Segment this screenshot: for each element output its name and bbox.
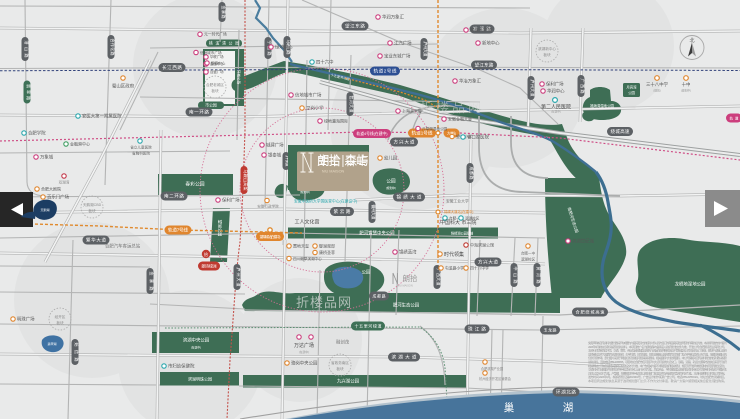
svg-text:安徽工业大学: 安徽工业大学 <box>446 198 469 203</box>
svg-text:十中: 十中 <box>682 81 691 88</box>
svg-text:安徽金融大厦: 安徽金融大厦 <box>448 115 472 121</box>
svg-text:屯溪路小学: 屯溪路小学 <box>445 265 464 270</box>
svg-text:肥河生态公园: 肥河生态公园 <box>393 302 420 309</box>
svg-text:四十六中: 四十六中 <box>316 59 334 66</box>
svg-text:银泰城: 银泰城 <box>268 152 282 159</box>
svg-text:九兴湖公园: 九兴湖公园 <box>337 378 360 385</box>
svg-text:十五里河绿道: 十五里河绿道 <box>355 322 382 328</box>
svg-text:板块: 板块 <box>211 88 219 93</box>
svg-text:滨湖新中心: 滨湖新中心 <box>538 46 556 51</box>
svg-text:包河大道: 包河大道 <box>349 96 355 113</box>
svg-text:信地城市广场: 信地城市广场 <box>200 50 222 55</box>
svg-text:合肥汽车客运总站: 合肥汽车客运总站 <box>105 243 141 250</box>
svg-text:金寨路: 金寨路 <box>149 272 155 291</box>
svg-text:杭州经济开发区管委会: 杭州经济开发区管委会 <box>479 376 512 381</box>
svg-text:绿地中心: 绿地中心 <box>275 44 293 51</box>
svg-text:紫云路: 紫云路 <box>334 208 351 215</box>
svg-text:华联广场: 华联广场 <box>210 54 224 59</box>
svg-text:万达广场: 万达广场 <box>294 342 314 349</box>
svg-text:元一时代广场: 元一时代广场 <box>204 32 227 37</box>
svg-text:融创茂: 融创茂 <box>336 339 350 346</box>
svg-text:珠江路: 珠江路 <box>468 326 486 333</box>
svg-text:龙栖地湿地公园: 龙栖地湿地公园 <box>675 281 706 288</box>
svg-text:广西路: 广西路 <box>580 79 586 94</box>
svg-text:凡草湖湿地公园: 凡草湖湿地公园 <box>422 126 448 131</box>
svg-text:金融港中心: 金融港中心 <box>70 140 90 146</box>
svg-text:锦绣大道: 锦绣大道 <box>397 194 422 201</box>
svg-text:(在建中): (在建中) <box>299 350 309 354</box>
svg-text:南一环路: 南一环路 <box>189 109 209 116</box>
svg-text:月亮湾: 月亮湾 <box>626 85 637 90</box>
svg-text:朗拾: 朗拾 <box>317 153 341 168</box>
svg-text:合肥绕城高速: 合肥绕城高速 <box>576 309 606 316</box>
svg-text:华冶万象汇: 华冶万象汇 <box>459 78 482 85</box>
svg-text:四十八中学: 四十八中学 <box>470 265 489 270</box>
svg-text:繁华大道: 繁华大道 <box>86 237 106 244</box>
svg-text:城建广场: 城建广场 <box>266 142 284 149</box>
svg-text:安徽中医药大学国医堂中心(在建设中): 安徽中医药大学国医堂中心(在建设中) <box>294 198 358 203</box>
svg-text:福海湾湿地公园: 福海湾湿地公园 <box>590 103 614 108</box>
svg-text:幼儿园: 幼儿园 <box>384 155 398 162</box>
svg-text:安医大第一附属医院: 安医大第一附属医院 <box>82 113 122 120</box>
svg-text:NIU MAISON: NIU MAISON <box>397 283 413 287</box>
svg-text:翡翠湖: 翡翠湖 <box>47 341 56 346</box>
svg-text:轨道4号线(在建中): 轨道4号线(在建中) <box>357 131 389 136</box>
svg-text:肥河智慧中央公园: 肥河智慧中央公园 <box>359 230 395 237</box>
svg-text:锦绣蓝湾: 锦绣蓝湾 <box>399 249 417 256</box>
svg-text:保利广场: 保利广场 <box>546 81 564 88</box>
svg-text:本项目周边规划信息来源于政府规划部门公示,不作为交付承诺。敬: 本项目周边规划信息来源于政府规划部门公示,不作为交付承诺。敬请广大客户留意相关信… <box>588 378 727 383</box>
svg-text:玉龙路: 玉龙路 <box>544 326 557 332</box>
svg-text:天鹅湖CBD: 天鹅湖CBD <box>83 202 102 207</box>
svg-text:朗诗绿洲: 朗诗绿洲 <box>202 262 217 268</box>
svg-text:滨湖中央公园: 滨湖中央公园 <box>183 337 210 344</box>
svg-text:湖: 湖 <box>563 402 574 414</box>
svg-text:骆岗中央公园: 骆岗中央公园 <box>291 360 318 367</box>
svg-text:华润万象汇: 华润万象汇 <box>382 14 405 21</box>
svg-text:轨道2号线: 轨道2号线 <box>374 68 397 75</box>
svg-text:成都路: 成都路 <box>469 167 475 180</box>
svg-text:庐州大道: 庐州大道 <box>236 268 242 287</box>
svg-text:庐州大道: 庐州大道 <box>530 80 536 97</box>
svg-text:板块: 板块 <box>88 208 96 213</box>
svg-text:明珠广场: 明珠广场 <box>17 316 35 323</box>
svg-text:环城公路: 环城公路 <box>237 70 242 85</box>
svg-text:百乐门广场: 百乐门广场 <box>47 194 70 201</box>
svg-text:天鹅湖: 天鹅湖 <box>40 207 49 212</box>
svg-text:广西大道: 广西大道 <box>436 269 442 286</box>
svg-text:(规划中): (规划中) <box>681 89 691 93</box>
svg-text:锦绣湖公园绿轴: 锦绣湖公园绿轴 <box>451 231 473 236</box>
svg-text:工人文化宫: 工人文化宫 <box>294 218 319 225</box>
svg-text:轨道7号线: 轨道7号线 <box>168 227 188 234</box>
svg-text:望湖公园: 望湖公园 <box>217 220 224 237</box>
svg-text:黄河路: 黄河路 <box>536 267 542 284</box>
svg-text:锦绣大道站(在建中): 锦绣大道站(在建中) <box>444 209 473 214</box>
svg-text:万象城: 万象城 <box>40 154 54 161</box>
svg-text:长江西路: 长江西路 <box>162 64 182 71</box>
svg-text:朗拾: 朗拾 <box>403 273 418 283</box>
svg-text:望江东路: 望江东路 <box>475 62 494 69</box>
svg-text:合肥学院: 合肥学院 <box>28 130 46 137</box>
svg-text:中海滨湖公馆: 中海滨湖公馆 <box>470 241 494 247</box>
svg-text:徽州大道: 徽州大道 <box>371 205 377 220</box>
svg-text:蜀山区政府: 蜀山区政府 <box>112 83 135 90</box>
svg-text:马鞍山高架: 马鞍山高架 <box>243 170 249 191</box>
svg-text:(在建中): (在建中) <box>191 346 201 350</box>
svg-text:www.zhelou.com: www.zhelou.com <box>305 309 328 313</box>
svg-text:森屿: 森屿 <box>345 153 369 168</box>
svg-text:望湖城站(在建中): 望湖城站(在建中) <box>260 234 281 239</box>
svg-text:南二环路: 南二环路 <box>164 193 184 200</box>
svg-text:翡翠路: 翡翠路 <box>26 84 32 100</box>
svg-text:板块: 板块 <box>56 320 64 325</box>
svg-text:拾: 拾 <box>204 251 208 257</box>
svg-text:滨湖明珠公园: 滨湖明珠公园 <box>188 375 212 381</box>
svg-text:经开区: 经开区 <box>55 314 66 319</box>
svg-text:方兴大道: 方兴大道 <box>478 259 498 266</box>
svg-text:庐州大道: 庐州大道 <box>423 42 429 57</box>
svg-text:环湖北路: 环湖北路 <box>556 389 576 396</box>
svg-text:中山路: 中山路 <box>513 267 519 284</box>
svg-text:(规划中): (规划中) <box>386 186 396 190</box>
svg-text:省立儿童医院: 省立儿童医院 <box>130 144 152 149</box>
svg-text:(规划): (规划) <box>653 89 661 93</box>
svg-text:安徽行政学院: 安徽行政学院 <box>257 203 279 208</box>
svg-text:信地城市广场: 信地城市广场 <box>295 92 322 99</box>
svg-text:康桥圣菲: 康桥圣菲 <box>319 249 335 255</box>
svg-text:保利广场: 保利广场 <box>222 197 240 204</box>
svg-text:合作化路: 合作化路 <box>110 39 116 56</box>
svg-text:双湖湾: 双湖湾 <box>59 179 70 184</box>
svg-text:卫岗小学: 卫岗小学 <box>306 105 324 112</box>
svg-text:绕城高速: 绕城高速 <box>611 128 630 135</box>
svg-text:巢: 巢 <box>504 401 515 414</box>
svg-text:滨湖校区: 滨湖校区 <box>521 256 536 261</box>
svg-text:合肥老城区: 合肥老城区 <box>206 82 224 87</box>
svg-text:折楼品网: 折楼品网 <box>420 100 484 115</box>
svg-text:宝业东城广场: 宝业东城广场 <box>384 53 411 60</box>
svg-text:板块: 板块 <box>336 366 344 371</box>
svg-text:方兴大道: 方兴大道 <box>394 139 415 146</box>
svg-text:安徽大剧院: 安徽大剧院 <box>470 27 493 34</box>
svg-text:中国科大 市三院: 中国科大 市三院 <box>440 219 476 226</box>
svg-text:四川烟草滨湖中心: 四川烟草滨湖中心 <box>293 256 322 261</box>
svg-text:合肥一中: 合肥一中 <box>521 250 536 255</box>
svg-text:百盛广场: 百盛广场 <box>210 69 224 74</box>
svg-text:省政务南区: 省政务南区 <box>331 360 349 365</box>
svg-text:市公园: 市公园 <box>205 103 217 108</box>
svg-text:合肥大剧院: 合肥大剧院 <box>41 185 61 191</box>
svg-text:华润中心: 华润中心 <box>547 88 565 95</box>
svg-text:金寨路: 金寨路 <box>221 6 227 19</box>
svg-text:NIU MAISON: NIU MAISON <box>322 169 345 173</box>
svg-text:春彩公园: 春彩公园 <box>185 181 204 188</box>
svg-text:时代领集: 时代领集 <box>444 251 464 258</box>
svg-text:板块: 板块 <box>543 52 551 57</box>
svg-text:公园: 公园 <box>628 90 635 95</box>
svg-text:市妇幼保健院: 市妇幼保健院 <box>168 363 195 370</box>
svg-text:银泰中心: 银泰中心 <box>211 60 226 65</box>
svg-text:三十八中学: 三十八中学 <box>646 81 669 88</box>
svg-text:御湖观邸: 御湖观邸 <box>319 242 335 248</box>
svg-text:(在建中): (在建中) <box>551 110 561 114</box>
svg-text:新地中心: 新地中心 <box>482 40 500 47</box>
svg-text:省胸科医院: 省胸科医院 <box>132 150 150 155</box>
svg-text:潜山路: 潜山路 <box>24 41 30 58</box>
svg-text:绿地瀛海国际: 绿地瀛海国际 <box>324 117 348 123</box>
svg-text:轨道: 轨道 <box>730 115 739 120</box>
svg-text:成都路: 成都路 <box>373 293 386 298</box>
svg-text:省口腔医院: 省口腔医院 <box>467 134 490 141</box>
svg-text:滨湖世纪城: 滨湖世纪城 <box>572 238 595 245</box>
svg-text:始信路: 始信路 <box>74 343 80 362</box>
svg-text:置地天玺: 置地天玺 <box>293 242 309 248</box>
svg-text:望江东路: 望江东路 <box>345 23 365 30</box>
svg-text:江汽广场: 江汽广场 <box>394 40 412 47</box>
svg-text:滨湖大道: 滨湖大道 <box>392 354 417 361</box>
